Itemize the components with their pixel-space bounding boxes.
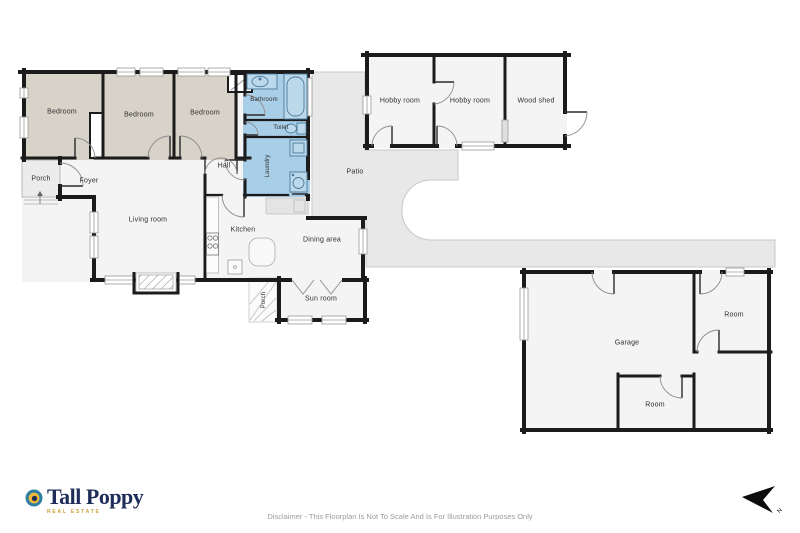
- room-label-side-porch: Porch: [261, 292, 267, 309]
- stove: [207, 233, 219, 255]
- room-label-bedroom-1: Bedroom: [47, 109, 77, 116]
- brand-name: Tall Poppy: [47, 486, 143, 508]
- room-label-dining-area: Dining area: [303, 237, 341, 244]
- room-label-living-room: Living room: [129, 217, 167, 224]
- north-arrow-icon: N: [742, 486, 784, 515]
- room-label-bathroom: Bathroom: [250, 97, 278, 103]
- room-label-garage: Garage: [615, 340, 640, 347]
- laundry-tub: [290, 140, 307, 156]
- kitchen-island: [249, 238, 275, 266]
- room-label-laundry: Laundry: [265, 154, 271, 177]
- fireplace: [134, 272, 178, 293]
- bedroom-closet: [90, 113, 103, 158]
- room-label-hobby-room-2: Hobby room: [450, 98, 490, 105]
- room-label-patio: Patio: [347, 169, 364, 176]
- room-label-front-porch: Porch: [31, 176, 50, 183]
- floorplan-drawing: N: [0, 0, 800, 533]
- disclaimer-text: Disclaimer - This Floorplan Is Not To Sc…: [0, 512, 800, 521]
- kitchen-sink: [228, 260, 242, 274]
- room-label-sun-room: Sun room: [305, 296, 337, 303]
- room-label-hall: Hall: [218, 163, 231, 170]
- room-label-room-2: Room: [645, 402, 664, 409]
- room-label-kitchen: Kitchen: [231, 227, 256, 234]
- hall-bench: [266, 198, 308, 214]
- room-label-room-1: Room: [724, 312, 743, 319]
- poppy-flower-icon: [25, 489, 43, 507]
- brand-logo: Tall Poppy REAL ESTATE: [25, 486, 143, 515]
- floorplan-page: N Porch Foyer Bedroom Bedroom Bedroom Ba…: [0, 0, 800, 533]
- room-label-bedroom-2: Bedroom: [124, 112, 154, 119]
- room-label-wood-shed: Wood shed: [517, 98, 554, 105]
- room-label-hobby-room-1: Hobby room: [380, 98, 420, 105]
- room-label-bedroom-3: Bedroom: [190, 110, 220, 117]
- bathroom-sink: [247, 74, 277, 89]
- room-label-toilet: Toilet: [273, 125, 288, 131]
- bathtub: [284, 74, 307, 119]
- room-label-foyer: Foyer: [80, 178, 99, 185]
- washing-machine: [290, 172, 307, 192]
